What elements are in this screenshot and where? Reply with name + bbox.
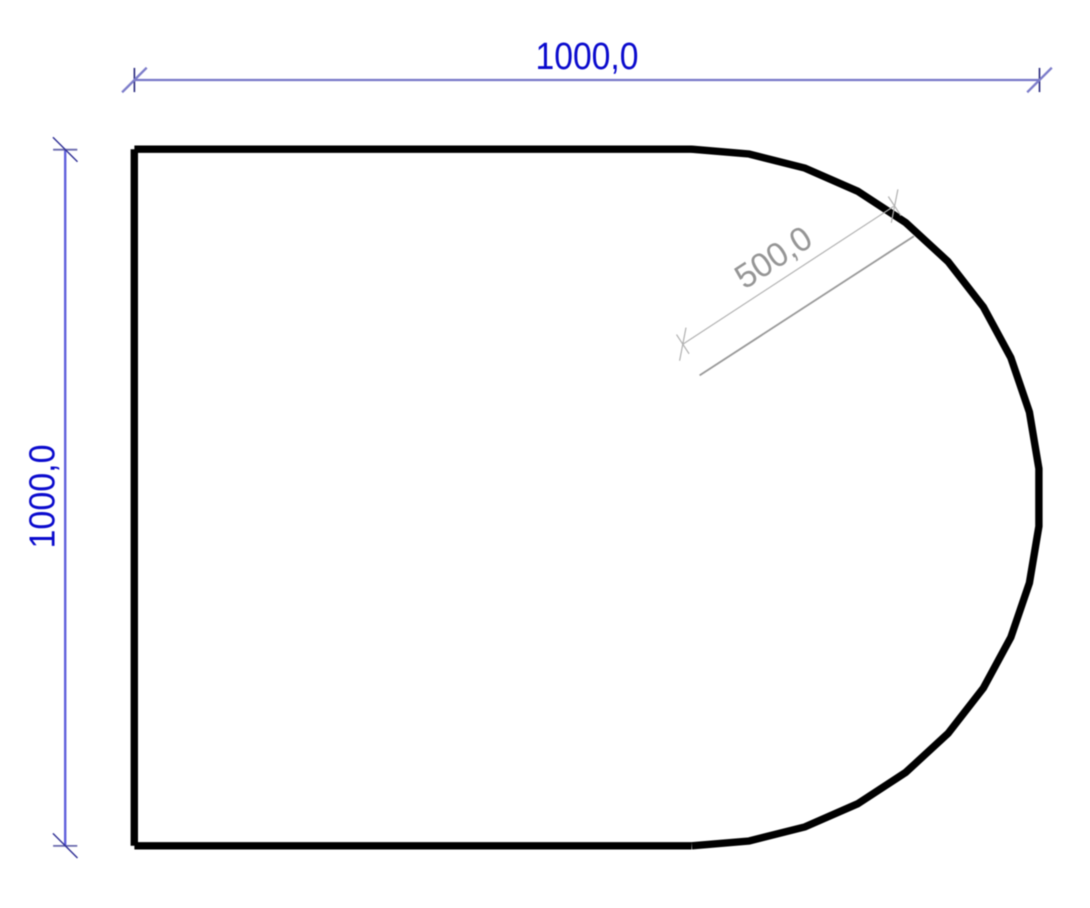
svg-text:1000,0: 1000,0 (22, 445, 63, 549)
svg-text:1000,0: 1000,0 (536, 36, 639, 78)
